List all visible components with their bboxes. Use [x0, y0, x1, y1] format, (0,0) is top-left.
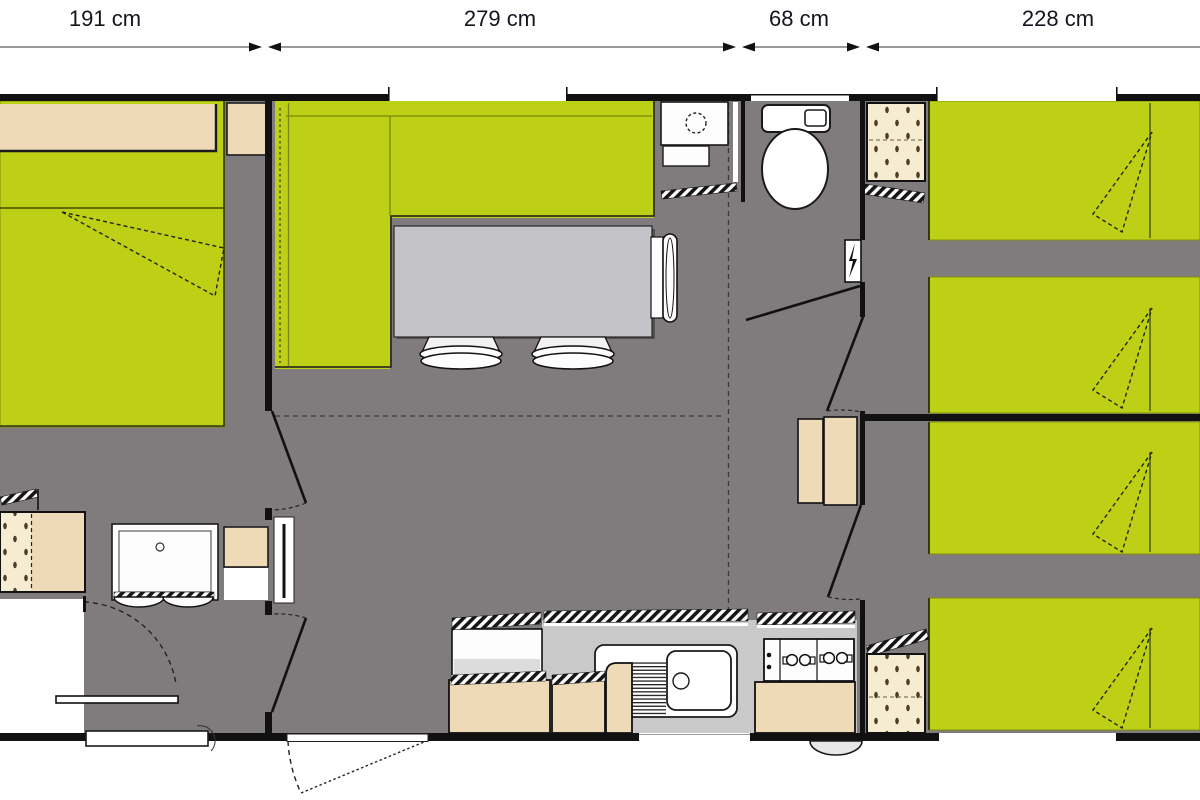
svg-text:228 cm: 228 cm	[1022, 6, 1094, 31]
svg-text:191 cm: 191 cm	[69, 6, 141, 31]
svg-text:279 cm: 279 cm	[464, 6, 536, 31]
svg-text:68 cm: 68 cm	[769, 6, 829, 31]
